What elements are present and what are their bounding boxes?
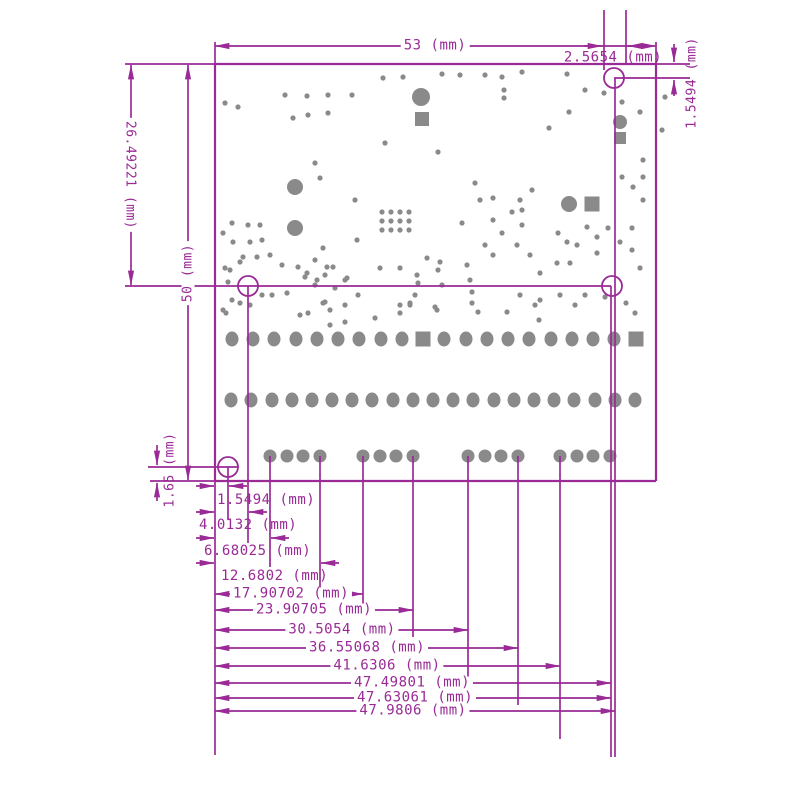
via <box>312 160 317 165</box>
via <box>322 299 327 304</box>
connector-pad <box>427 393 440 408</box>
dim-bottom-hole-offset-y: 1.65 (mm) <box>164 433 177 508</box>
dim-stack-47-9806: 47.9806 (mm) <box>356 705 469 718</box>
via <box>317 175 322 180</box>
connector-pad-round <box>281 450 294 463</box>
connector-pad <box>353 332 366 347</box>
via <box>537 297 542 302</box>
via <box>222 265 227 270</box>
connector-pad <box>290 332 303 347</box>
via <box>472 180 477 185</box>
via <box>482 72 487 77</box>
via <box>259 237 264 242</box>
connector-pad <box>568 393 581 408</box>
via <box>509 209 514 214</box>
via <box>388 218 393 223</box>
via <box>269 292 274 297</box>
via <box>629 225 634 230</box>
via <box>406 209 411 214</box>
via <box>290 115 295 120</box>
via <box>304 270 309 275</box>
via <box>305 112 310 117</box>
via <box>240 254 245 259</box>
via <box>517 292 522 297</box>
via <box>464 262 469 267</box>
via <box>532 302 537 307</box>
via <box>514 242 519 247</box>
via <box>415 280 420 285</box>
via <box>632 310 637 315</box>
via <box>529 187 534 192</box>
connector-pad <box>587 332 600 347</box>
connector-pad-square <box>416 332 431 347</box>
dim-upper-section-height: 26.49221 (mm) <box>124 118 137 232</box>
connector-pad <box>306 393 319 408</box>
via <box>397 310 402 315</box>
via <box>295 264 300 269</box>
via <box>536 317 541 322</box>
via <box>397 218 402 223</box>
via <box>572 302 577 307</box>
via <box>342 319 347 324</box>
via <box>379 218 384 223</box>
large-via <box>287 179 303 195</box>
via <box>327 322 332 327</box>
via <box>267 252 272 257</box>
via <box>304 93 309 98</box>
via <box>659 127 664 132</box>
square-pad <box>415 112 429 126</box>
via <box>437 259 442 264</box>
connector-pad <box>488 393 501 408</box>
via <box>237 300 242 305</box>
connector-pad-square <box>629 332 644 347</box>
dim-stack-47-49801: 47.49801 (mm) <box>351 677 473 690</box>
via <box>640 157 645 162</box>
via <box>546 125 551 130</box>
large-via <box>287 220 303 236</box>
via <box>554 260 559 265</box>
connector-pad-round <box>374 450 387 463</box>
connector-pad <box>375 332 388 347</box>
via <box>352 197 357 202</box>
via <box>619 99 624 104</box>
pcb-dimension-drawing: 53 (mm) 2.5654 (mm) 1.5494 (mm) 26.49221… <box>0 0 800 800</box>
via <box>397 302 402 307</box>
connector-pad-round <box>495 450 508 463</box>
connector-pad <box>548 393 561 408</box>
via <box>406 227 411 232</box>
via <box>354 237 359 242</box>
via <box>379 209 384 214</box>
via <box>342 277 347 282</box>
via <box>257 222 262 227</box>
dim-board-height: 50 (mm) <box>182 241 195 305</box>
via <box>475 309 480 314</box>
via <box>637 265 642 270</box>
connector-pad-round <box>479 450 492 463</box>
connector-pad <box>311 332 324 347</box>
via <box>435 267 440 272</box>
connector-pad <box>226 332 239 347</box>
connector-pad <box>629 393 642 408</box>
via <box>388 209 393 214</box>
copper-pads-layer <box>220 69 667 462</box>
via <box>519 69 524 74</box>
via <box>527 252 532 257</box>
via <box>490 252 495 257</box>
via <box>555 230 560 235</box>
connector-pad <box>447 393 460 408</box>
connector-pad <box>266 393 279 408</box>
connector-pad <box>286 393 299 408</box>
via <box>279 262 284 267</box>
via <box>225 279 230 284</box>
via <box>355 292 360 297</box>
connector-pad-round <box>587 450 600 463</box>
via <box>380 75 385 80</box>
via <box>477 197 482 202</box>
via <box>619 174 624 179</box>
via <box>557 292 562 297</box>
via <box>662 94 667 99</box>
via <box>407 300 412 305</box>
connector-pad <box>268 332 281 347</box>
large-via <box>412 88 430 106</box>
via <box>349 92 354 97</box>
via <box>457 72 462 77</box>
connector-pad <box>508 393 521 408</box>
via <box>482 242 487 247</box>
via <box>605 225 610 230</box>
connector-pad <box>545 332 558 347</box>
via <box>537 270 542 275</box>
via <box>227 267 232 272</box>
via <box>594 250 599 255</box>
via <box>220 230 225 235</box>
via <box>382 140 387 145</box>
via <box>490 217 495 222</box>
via <box>247 239 252 244</box>
dim-stack-41-6306: 41.6306 (mm) <box>330 660 443 673</box>
via <box>574 242 579 247</box>
via <box>499 74 504 79</box>
via <box>330 264 335 269</box>
via <box>467 277 472 282</box>
connector-pad <box>523 332 536 347</box>
connector-pad <box>326 393 339 408</box>
dim-stack-23-90705: 23.90705 (mm) <box>253 604 375 617</box>
via <box>459 220 464 225</box>
connector-pad-round <box>297 450 310 463</box>
connector-pad <box>528 393 541 408</box>
via <box>229 220 234 225</box>
via <box>222 100 227 105</box>
via <box>501 95 506 100</box>
via <box>617 239 622 244</box>
via <box>517 197 522 202</box>
large-via <box>561 196 577 212</box>
via <box>397 265 402 270</box>
via <box>379 227 384 232</box>
dim-stack-17-90702: 17.90702 (mm) <box>230 588 352 601</box>
board-outline <box>215 64 656 481</box>
dim-top-hole-offset-x: 2.5654 (mm) <box>564 52 662 65</box>
via <box>594 234 599 239</box>
connector-pad <box>460 332 473 347</box>
via <box>325 92 330 97</box>
connector-pad <box>438 332 451 347</box>
via <box>314 277 319 282</box>
connector-pad <box>407 393 420 408</box>
via <box>519 207 524 212</box>
via <box>229 297 234 302</box>
via <box>566 109 571 114</box>
connector-pad <box>481 332 494 347</box>
dim-stack-6-68025: 6.68025 (mm) <box>204 545 311 558</box>
via <box>501 87 506 92</box>
via <box>254 254 259 259</box>
dim-top-hole-offset-y: 1.5494 (mm) <box>686 37 699 129</box>
via <box>582 292 587 297</box>
connector-pad <box>566 332 579 347</box>
connector-pad <box>396 332 409 347</box>
via <box>388 227 393 232</box>
via <box>372 315 377 320</box>
via <box>397 227 402 232</box>
connector-pad <box>589 393 602 408</box>
connector-pad <box>502 332 515 347</box>
via <box>623 300 628 305</box>
dim-board-width: 53 (mm) <box>401 40 470 53</box>
via <box>297 312 302 317</box>
via <box>490 195 495 200</box>
dimension-lines <box>131 44 674 711</box>
via <box>630 184 635 189</box>
connector-pad <box>245 393 258 408</box>
dim-stack-4-0132: 4.0132 (mm) <box>199 519 297 532</box>
dim-stack-12-6802: 12.6802 (mm) <box>221 570 328 583</box>
connector-pad <box>346 393 359 408</box>
connector-pad <box>225 393 238 408</box>
via <box>582 87 587 92</box>
mounting-holes <box>218 68 624 477</box>
via <box>312 257 317 262</box>
via <box>414 272 419 277</box>
via <box>499 230 504 235</box>
via <box>397 209 402 214</box>
connector-pad <box>387 393 400 408</box>
connector-pad-round <box>390 450 403 463</box>
connector-pad <box>467 393 480 408</box>
via <box>601 90 606 95</box>
via <box>220 307 225 312</box>
via <box>424 255 429 260</box>
via <box>412 292 417 297</box>
via <box>629 247 634 252</box>
via <box>325 110 330 115</box>
via <box>400 74 405 79</box>
via <box>640 197 645 202</box>
via <box>640 174 645 179</box>
via <box>469 289 474 294</box>
via <box>434 307 439 312</box>
dim-stack-30-5054: 30.5054 (mm) <box>285 624 398 637</box>
via <box>235 104 240 109</box>
dim-stack-1-5494: 1.5494 (mm) <box>217 494 315 507</box>
connector-pad-round <box>571 450 584 463</box>
square-pad <box>585 197 600 212</box>
via <box>322 272 327 277</box>
via <box>282 92 287 97</box>
via <box>284 290 289 295</box>
via <box>377 265 382 270</box>
via <box>564 71 569 76</box>
via <box>567 260 572 265</box>
connector-pad <box>608 332 621 347</box>
via <box>305 310 310 315</box>
via <box>237 259 242 264</box>
via <box>259 292 264 297</box>
dim-stack-36-55068: 36.55068 (mm) <box>306 642 428 655</box>
via <box>519 222 524 227</box>
connector-pad <box>332 332 345 347</box>
via <box>342 302 347 307</box>
via <box>324 264 329 269</box>
via <box>245 222 250 227</box>
via <box>406 218 411 223</box>
via <box>230 239 235 244</box>
via <box>435 149 440 154</box>
via <box>637 109 642 114</box>
via <box>469 300 474 305</box>
via <box>564 239 569 244</box>
via <box>320 245 325 250</box>
via <box>327 307 332 312</box>
connector-pad <box>366 393 379 408</box>
via <box>584 224 589 229</box>
via <box>439 71 444 76</box>
via <box>504 309 509 314</box>
